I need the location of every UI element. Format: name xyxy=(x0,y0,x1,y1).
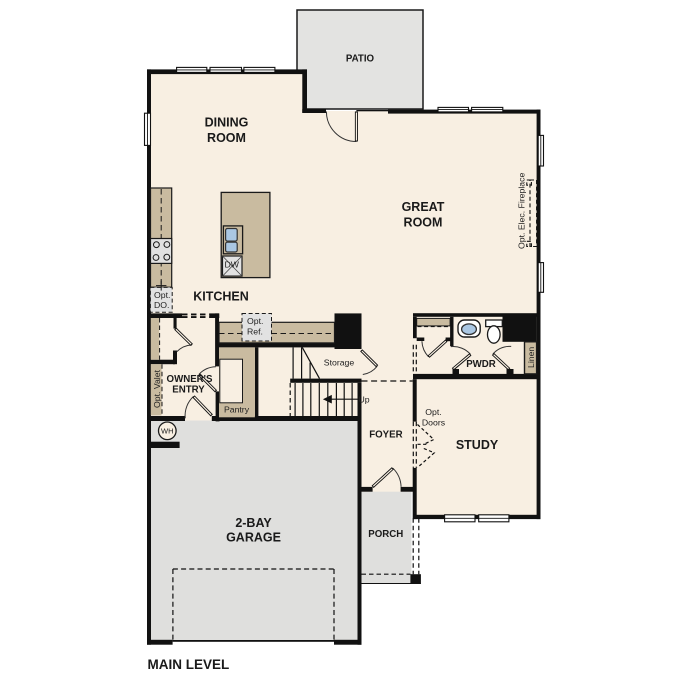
svg-text:Storage: Storage xyxy=(324,358,355,368)
svg-text:ROOM: ROOM xyxy=(404,216,443,230)
svg-text:PATIO: PATIO xyxy=(346,54,375,65)
svg-text:Pantry: Pantry xyxy=(224,404,250,414)
svg-text:KITCHEN: KITCHEN xyxy=(193,290,249,304)
svg-text:OWNER'S: OWNER'S xyxy=(167,374,213,385)
svg-text:Doors: Doors xyxy=(422,418,446,428)
svg-text:STUDY: STUDY xyxy=(456,438,499,452)
svg-text:FOYER: FOYER xyxy=(369,430,402,441)
svg-text:GREAT: GREAT xyxy=(402,200,445,214)
svg-text:PWDR: PWDR xyxy=(466,359,496,370)
svg-text:ENTRY: ENTRY xyxy=(172,384,205,395)
svg-text:PORCH: PORCH xyxy=(368,529,403,540)
svg-text:Opt.: Opt. xyxy=(425,407,441,417)
svg-text:DO.: DO. xyxy=(154,300,169,310)
svg-text:Linen: Linen xyxy=(526,347,536,368)
svg-text:ROOM: ROOM xyxy=(207,131,246,145)
svg-text:2-BAY: 2-BAY xyxy=(235,516,272,530)
svg-text:WH: WH xyxy=(161,427,174,436)
svg-text:DW: DW xyxy=(225,260,240,270)
svg-text:DINING: DINING xyxy=(205,115,249,129)
svg-text:Opt.: Opt. xyxy=(247,316,263,326)
svg-text:MAIN LEVEL: MAIN LEVEL xyxy=(148,657,230,672)
svg-text:Opt. Valet: Opt. Valet xyxy=(152,369,162,408)
svg-text:Up: Up xyxy=(359,394,370,404)
svg-text:Ref.: Ref. xyxy=(247,327,263,337)
svg-text:GARAGE: GARAGE xyxy=(226,531,281,545)
svg-text:Opt. Elec. Fireplace: Opt. Elec. Fireplace xyxy=(517,173,527,249)
svg-text:Opt.: Opt. xyxy=(154,290,170,300)
